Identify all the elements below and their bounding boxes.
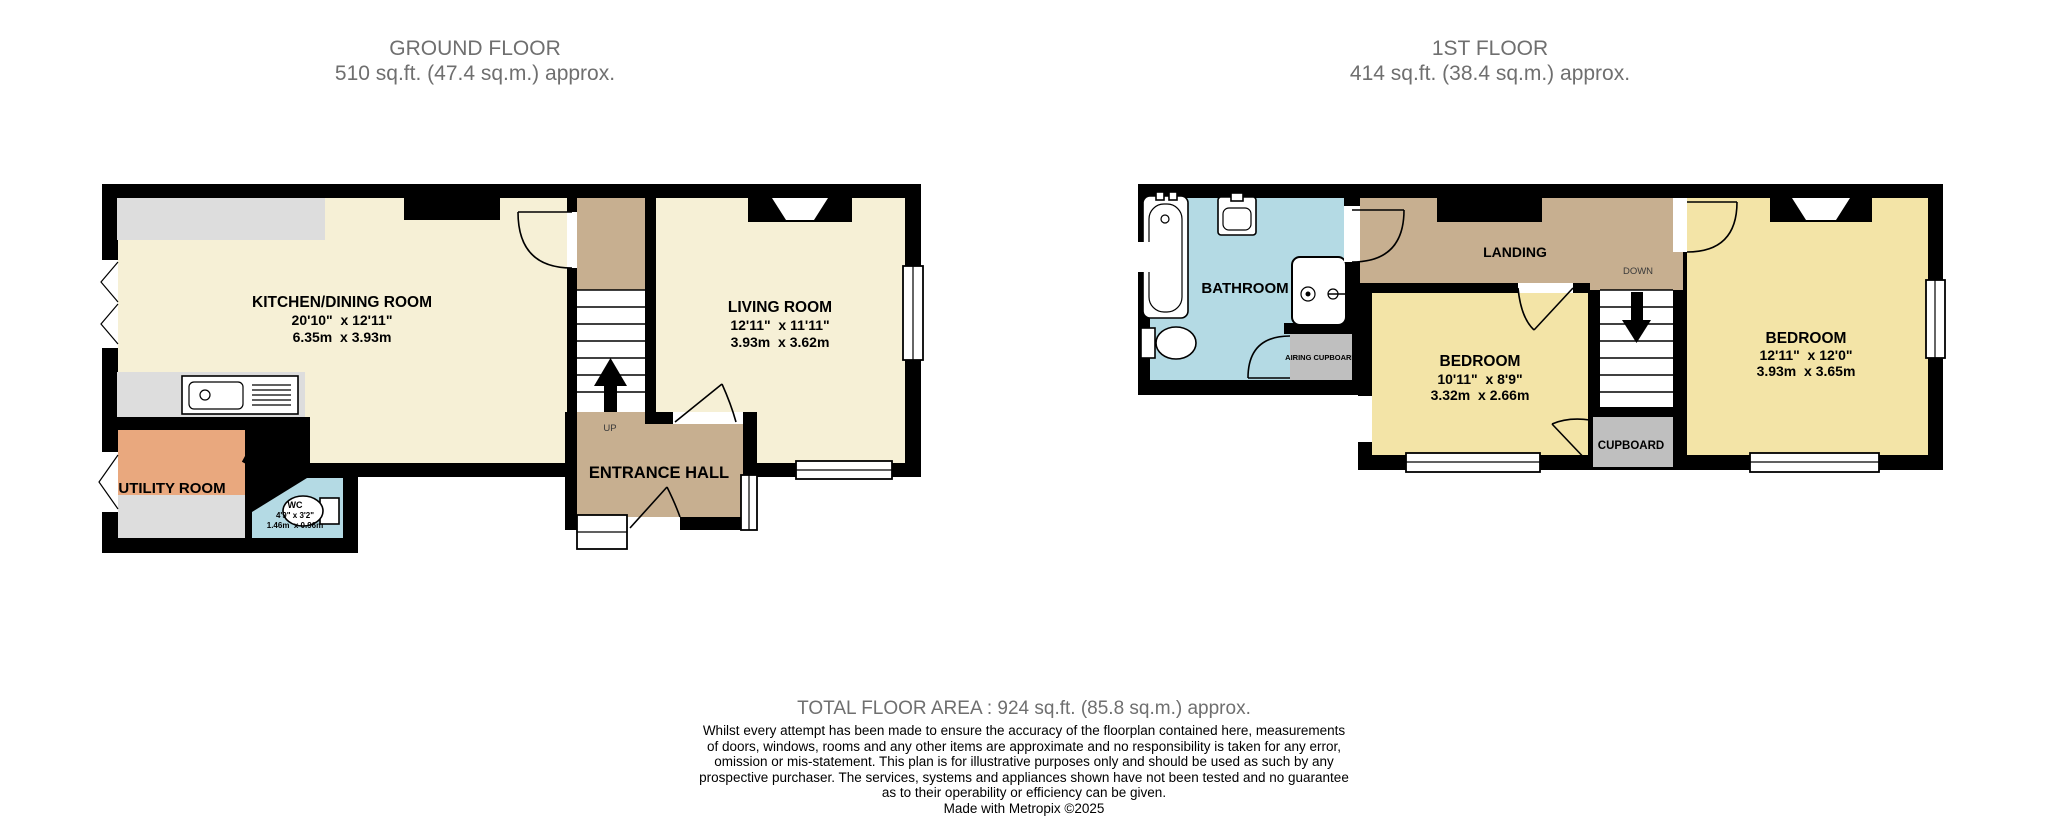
stairs-up-arrow-stem <box>604 386 617 412</box>
bathroom-toilet-icon <box>1141 327 1196 359</box>
bedroom-right-label: BEDROOM <box>1766 330 1847 347</box>
bedroom-right-window <box>1750 453 1879 472</box>
landing-label: LANDING <box>1483 244 1547 260</box>
bedroom-left-dim-imperial: 10'11" x 8'9" <box>1437 371 1522 387</box>
first-floor-title-line: 1ST FLOOR <box>1170 36 1810 61</box>
bedroom-right-area <box>1687 198 1928 455</box>
stairs-up <box>577 290 645 412</box>
ground-floor-title: GROUND FLOOR 510 sq.ft. (47.4 sq.m.) app… <box>155 36 795 86</box>
bedroom-right-side-window <box>1926 280 1945 358</box>
landing-stair-strip <box>1590 283 1683 290</box>
kitchen-dim-imperial: 20'10" x 12'11" <box>292 312 393 328</box>
utility-window <box>99 452 118 512</box>
living-dim-metric: 3.93m x 3.62m <box>731 334 830 350</box>
disclaimer-line: prospective purchaser. The services, sys… <box>0 770 2048 786</box>
kitchen-window <box>101 260 118 348</box>
stair-hall-area <box>577 198 645 290</box>
cupboard-label: CUPBOARD <box>1598 440 1664 452</box>
bedroom-right-dim-metric: 3.93m x 3.65m <box>1757 363 1856 379</box>
total-floor-area: TOTAL FLOOR AREA : 924 sq.ft. (85.8 sq.m… <box>0 698 2048 720</box>
stairs-up-label: UP <box>603 423 616 434</box>
disclaimer-line: as to their operability or efficiency ca… <box>0 785 2048 801</box>
entrance-hall-label: ENTRANCE HALL <box>589 464 729 482</box>
disclaimer: Whilst every attempt has been made to en… <box>0 723 2048 817</box>
floorplan-page: { "floors": [ { "title": "GROUND FLOOR",… <box>0 0 2048 818</box>
ground-floor-area-line: 510 sq.ft. (47.4 sq.m.) approx. <box>155 61 795 86</box>
wc-dim-metric: 1.46m x 0.96m <box>267 521 323 530</box>
stairs-down <box>1600 290 1673 407</box>
bedroom-right-dim-imperial: 12'11" x 12'0" <box>1759 347 1852 363</box>
first-floor-title: 1ST FLOOR 414 sq.ft. (38.4 sq.m.) approx… <box>1170 36 1810 86</box>
kitchen-label: KITCHEN/DINING ROOM <box>252 294 432 311</box>
first-floor-area-line: 414 sq.ft. (38.4 sq.m.) approx. <box>1170 61 1810 86</box>
kitchen-chimney-breast <box>404 198 500 220</box>
bedroom-left-dim-metric: 3.32m x 2.66m <box>1431 387 1530 403</box>
stairs-down-label: DOWN <box>1623 266 1653 277</box>
living-dim-imperial: 12'11" x 11'11" <box>730 317 829 333</box>
bathroom-window <box>1138 242 1150 272</box>
ground-floor-plan: KITCHEN/DINING ROOM 20'10" x 12'11" 6.35… <box>95 180 955 570</box>
bathroom-sink-icon <box>1218 193 1256 235</box>
first-floor-plan: BATHROOM LANDING DOWN AIRING CUPBOARD CU… <box>1130 180 1955 480</box>
living-label: LIVING ROOM <box>728 299 832 316</box>
wc-label: WC <box>288 500 303 510</box>
hall-living-wall-stub <box>645 412 673 424</box>
kitchen-dim-metric: 6.35m x 3.93m <box>293 329 392 345</box>
shower-unit-icon <box>1292 257 1346 325</box>
utility-floor <box>118 495 245 538</box>
kitchen-counter <box>117 198 325 240</box>
utility-label: UTILITY ROOM <box>118 480 225 497</box>
hall-front-window <box>577 515 627 549</box>
ground-floor-title-line: GROUND FLOOR <box>155 36 795 61</box>
disclaimer-line: Whilst every attempt has been made to en… <box>0 723 2048 739</box>
airing-cupboard-label: AIRING CUPBOARD <box>1285 353 1357 362</box>
stairs-down-arrow-stem <box>1631 292 1643 320</box>
kitchen-sink-icon <box>182 376 298 414</box>
wc-dim-imperial: 4'9" x 3'2" <box>276 511 314 520</box>
disclaimer-line: omission or mis-statement. This plan is … <box>0 754 2048 770</box>
landing-chimney-breast <box>1437 198 1542 222</box>
bedroom-left-label: BEDROOM <box>1440 353 1521 370</box>
disclaimer-line: of doors, windows, rooms and any other i… <box>0 739 2048 755</box>
bedroom-left-side-window <box>1358 396 1372 442</box>
bedroom-left-window <box>1406 453 1540 472</box>
living-side-window <box>903 266 923 360</box>
metropix-credit: Made with Metropix ©2025 <box>0 801 2048 817</box>
hall-side-window <box>741 475 757 530</box>
bathroom-label: BATHROOM <box>1201 280 1288 297</box>
living-rear-window <box>796 461 892 479</box>
